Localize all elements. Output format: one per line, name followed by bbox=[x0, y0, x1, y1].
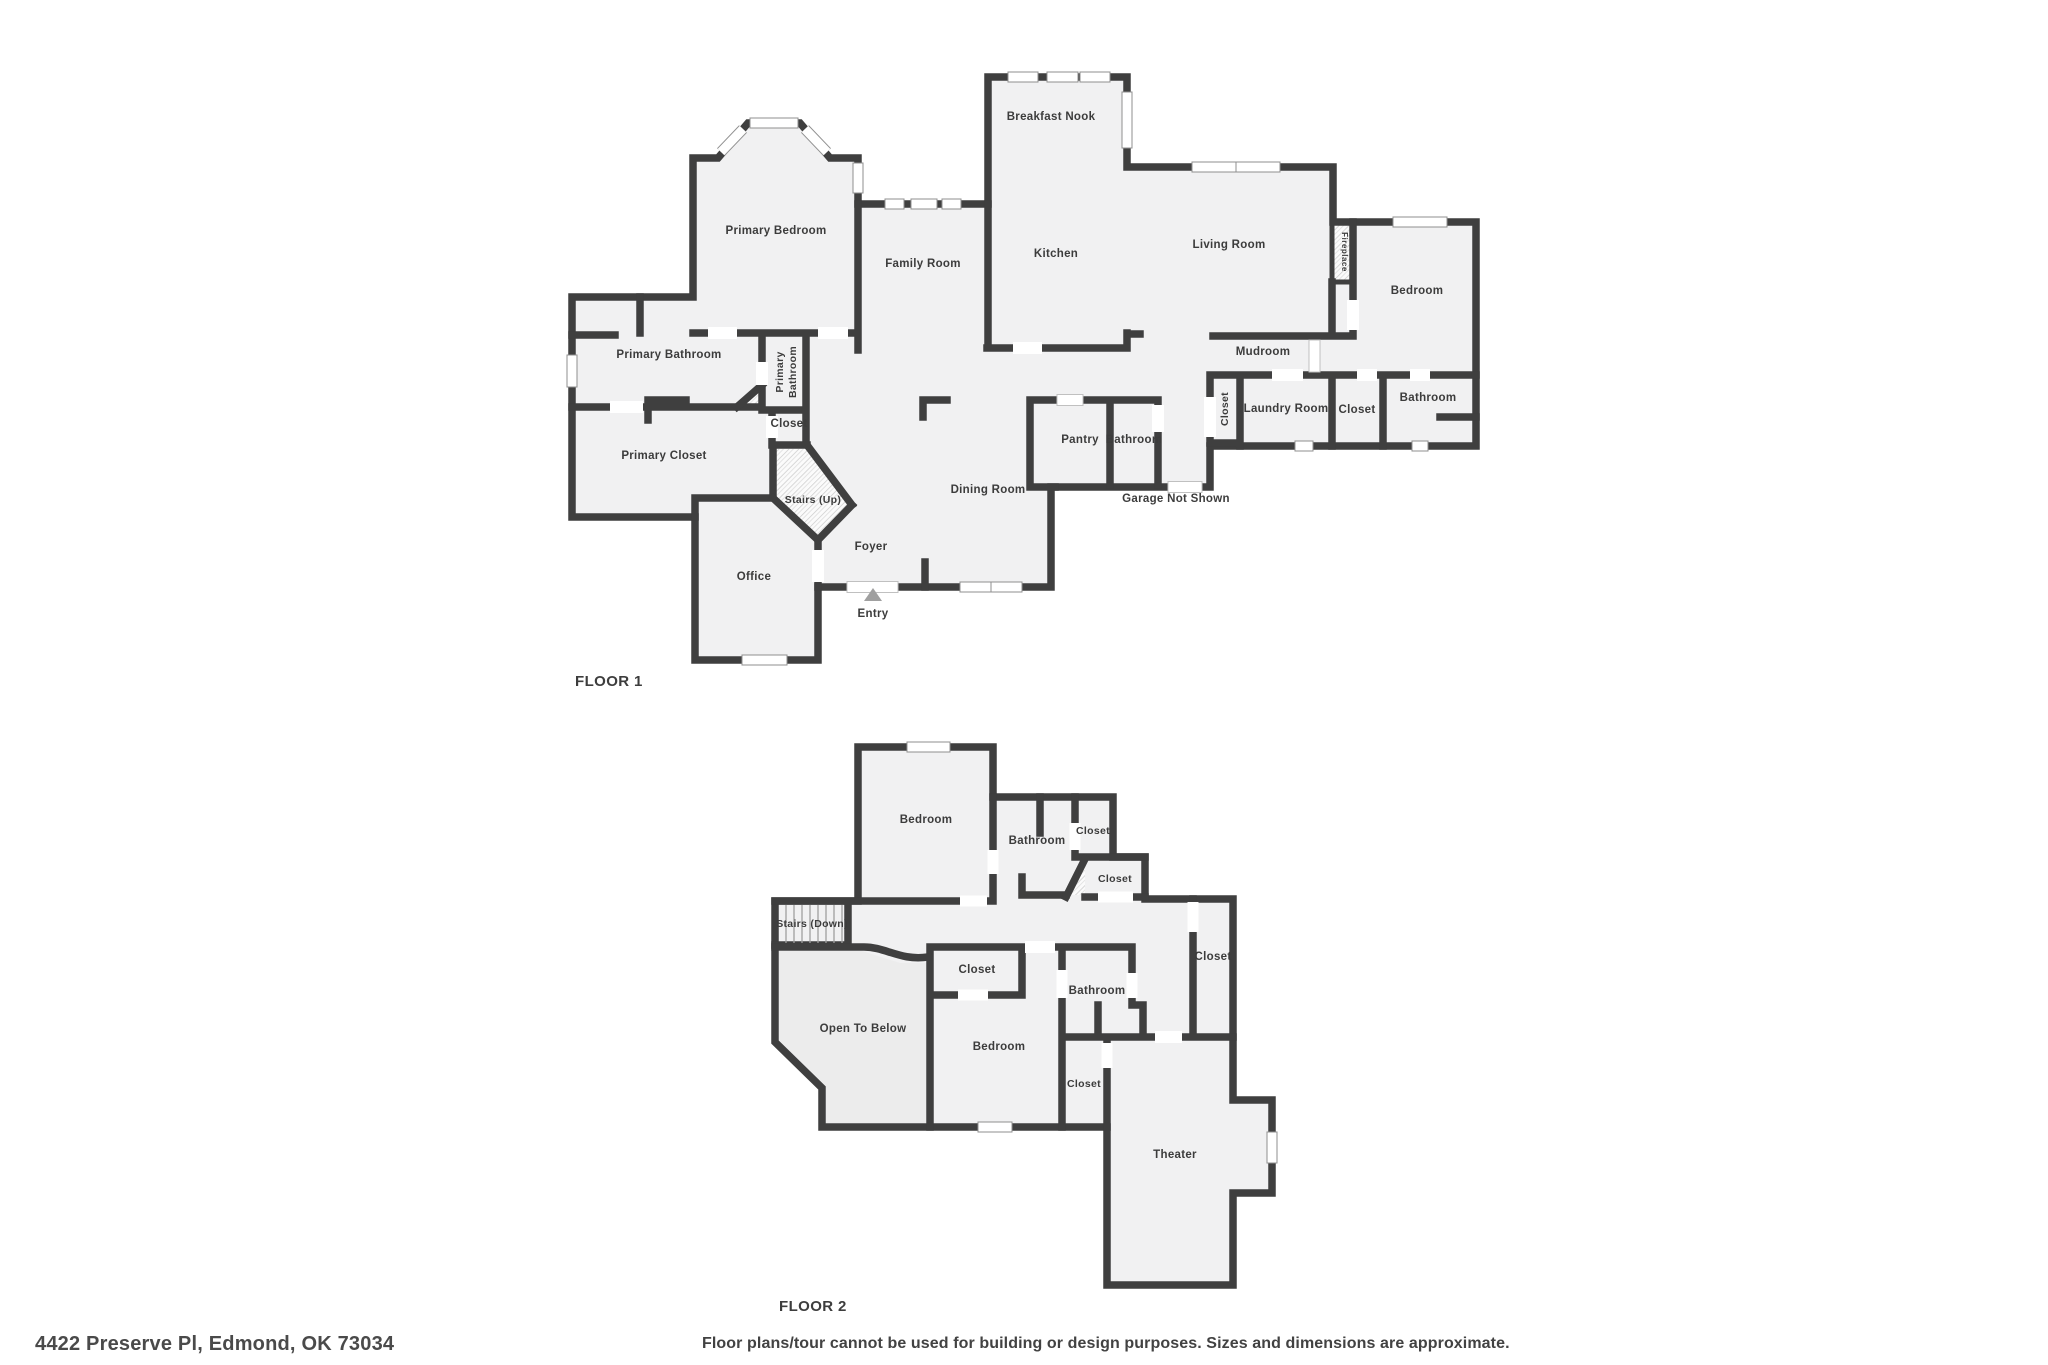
room-label-mudroom: Mudroom bbox=[1236, 346, 1290, 358]
footer-disclaimer: Floor plans/tour cannot be used for buil… bbox=[702, 1335, 1510, 1352]
pantry-door-opening bbox=[1057, 395, 1083, 406]
room-label-bathroom-wing: Bathroom bbox=[1400, 392, 1457, 404]
room-label-fireplace: Fireplace bbox=[1340, 232, 1349, 272]
room-label-stairs-up: Stairs (Up) bbox=[785, 494, 841, 506]
room-label-primary-bathroom-2-line2: Bathroom bbox=[787, 346, 799, 398]
room-label-primary-closet: Primary Closet bbox=[621, 450, 706, 462]
room-label-office: Office bbox=[737, 571, 771, 583]
floor1-title: FLOOR 1 bbox=[575, 673, 643, 690]
room-label-pantry: Pantry bbox=[1061, 434, 1099, 446]
label-open-to-below: Open To Below bbox=[820, 1023, 907, 1035]
garage-opening bbox=[1168, 482, 1202, 493]
room-label-closet-hall: Closet bbox=[771, 418, 808, 430]
floor2-title: FLOOR 2 bbox=[779, 1298, 847, 1315]
room-label-closet-f2b: Closet bbox=[1098, 873, 1132, 885]
footer: 4422 Preserve Pl, Edmond, OK 73034 Floor… bbox=[35, 1333, 1510, 1355]
mudroom-door-opening bbox=[1309, 340, 1320, 372]
room-label-living-room: Living Room bbox=[1193, 239, 1266, 251]
room-label-kitchen: Kitchen bbox=[1034, 248, 1078, 260]
room-label-bathroom-f2a: Bathroom bbox=[1009, 835, 1066, 847]
room-label-bathroom-powder: Bathroom bbox=[1106, 434, 1163, 446]
footer-address: 4422 Preserve Pl, Edmond, OK 73034 bbox=[35, 1333, 395, 1355]
room-label-bedroom-f2b: Bedroom bbox=[973, 1041, 1026, 1053]
room-label-foyer: Foyer bbox=[855, 541, 888, 553]
room-label-closet-vertical: Closet bbox=[1219, 392, 1231, 426]
room-label-closet-f2-mid: Closet bbox=[959, 964, 996, 976]
floor1-footprint bbox=[572, 77, 1476, 660]
room-label-breakfast-nook: Breakfast Nook bbox=[1007, 111, 1096, 123]
room-label-primary-bathroom: Primary Bathroom bbox=[616, 349, 721, 361]
floor2-plan: Bedroom Bathroom Closet Closet Stairs (D… bbox=[775, 742, 1277, 1315]
room-label-bedroom-f1: Bedroom bbox=[1391, 285, 1444, 297]
room-label-family-room: Family Room bbox=[885, 258, 961, 270]
open-to-below-area bbox=[779, 951, 926, 1123]
room-label-primary-bathroom-2-line1: Primary bbox=[774, 351, 786, 392]
floor1-plan: Breakfast Nook Primary Bedroom Kitchen L… bbox=[567, 72, 1476, 690]
floor-plan-page: Breakfast Nook Primary Bedroom Kitchen L… bbox=[0, 0, 2048, 1365]
room-label-closet-wing: Closet bbox=[1339, 404, 1376, 416]
room-label-closet-f2-right: Closet bbox=[1195, 951, 1232, 963]
room-label-closet-f2a: Closet bbox=[1076, 825, 1110, 837]
floor-plan-drawing: Breakfast Nook Primary Bedroom Kitchen L… bbox=[0, 0, 2048, 1365]
room-label-theater: Theater bbox=[1153, 1149, 1197, 1161]
room-label-dining-room: Dining Room bbox=[951, 484, 1026, 496]
room-label-primary-bedroom: Primary Bedroom bbox=[725, 225, 826, 237]
label-garage-not-shown: Garage Not Shown bbox=[1122, 493, 1230, 505]
room-label-closet-f2-bot: Closet bbox=[1067, 1078, 1101, 1090]
room-label-laundry-room: Laundry Room bbox=[1244, 403, 1329, 415]
room-label-entry: Entry bbox=[858, 608, 889, 620]
room-label-stairs-down: Stairs (Down) bbox=[776, 918, 848, 930]
room-label-bedroom-f2a: Bedroom bbox=[900, 814, 953, 826]
room-label-bathroom-f2b: Bathroom bbox=[1069, 985, 1126, 997]
